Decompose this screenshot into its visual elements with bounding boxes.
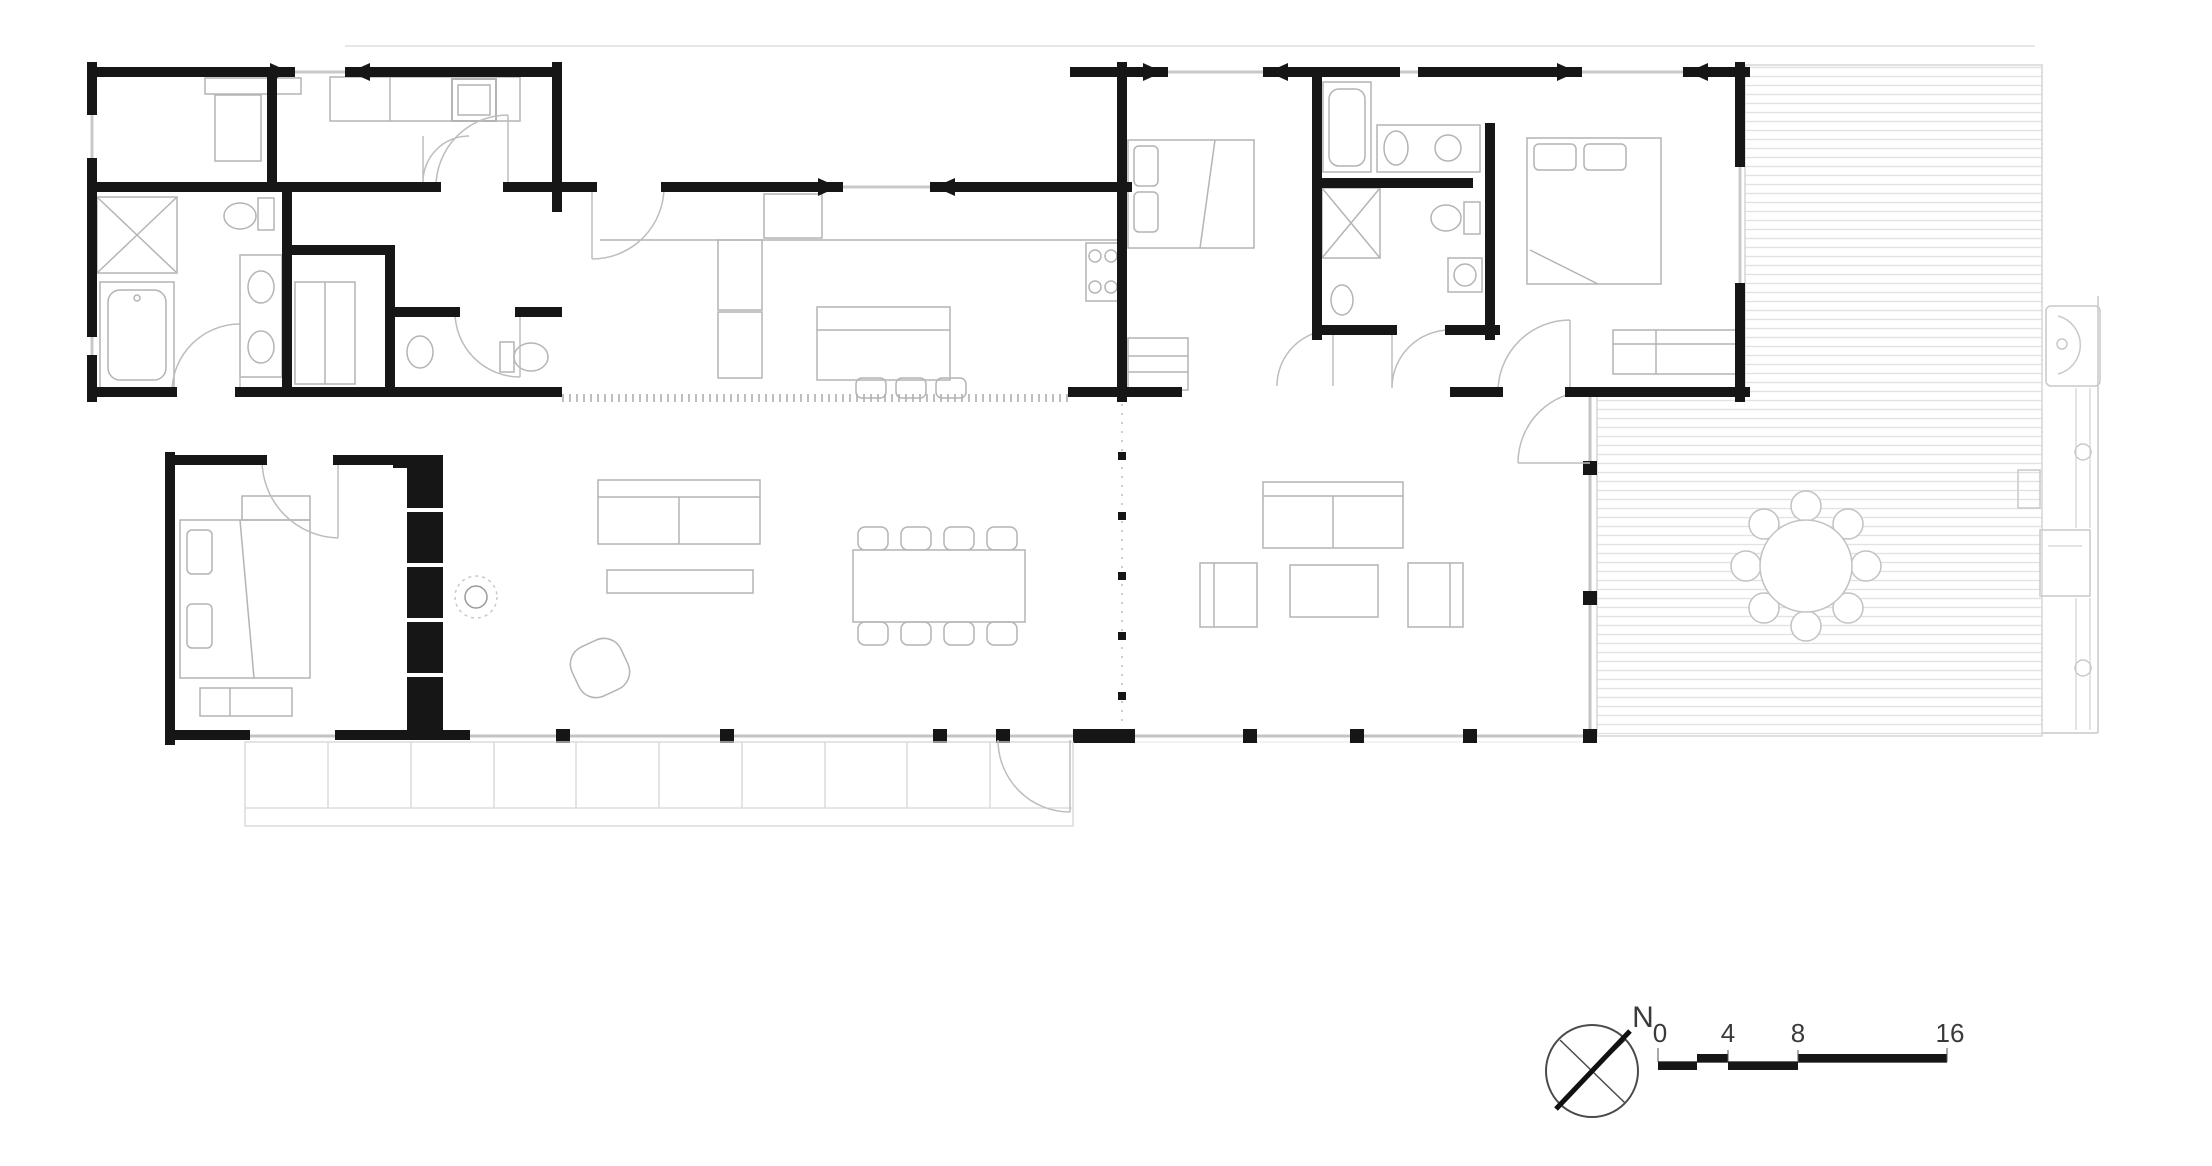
- floor-plan-page: N 0 4 8 16: [0, 0, 2212, 1166]
- family-room-furniture: [1200, 482, 1463, 627]
- laundry-counter: [330, 77, 520, 121]
- walls: [92, 63, 1745, 740]
- tall-cabinet: [718, 240, 762, 310]
- bathroom2-fixtures: [1322, 82, 1482, 315]
- sink: [407, 336, 433, 368]
- scale-label-8: 8: [1791, 1018, 1805, 1048]
- washer: [1448, 258, 1482, 292]
- bedroom2-furniture: [1128, 140, 1254, 390]
- toilet: [258, 198, 274, 230]
- column-grid-line: [1118, 404, 1126, 728]
- armchair: [1408, 563, 1463, 627]
- bedroom1-furniture: [205, 78, 301, 161]
- kitchen-island: [817, 307, 950, 380]
- fridge: [764, 194, 822, 238]
- outdoor-sink: [2046, 306, 2100, 386]
- toilet: [500, 342, 514, 372]
- paver-steps: [245, 742, 1073, 826]
- armchair: [564, 632, 636, 704]
- kitchen: [600, 194, 1122, 398]
- dresser: [1128, 338, 1188, 390]
- scale-label-0: 0: [1653, 1018, 1667, 1048]
- deck: [1597, 65, 2042, 736]
- scale-label-16: 16: [1936, 1018, 1965, 1048]
- double-vanity: [240, 255, 282, 377]
- low-cabinet: [607, 570, 753, 593]
- bathroom1-fixtures: [97, 197, 282, 388]
- living-left-furniture: [455, 480, 760, 704]
- dining-set: [853, 527, 1025, 645]
- bench: [1613, 330, 1737, 374]
- structural-posts: [556, 461, 1597, 743]
- scale-bar: 0 4 8 16: [1653, 1018, 1965, 1070]
- bar-stool: [896, 378, 926, 398]
- bathtub: [100, 282, 174, 388]
- shelving-wall: [393, 455, 443, 740]
- dining-table: [853, 550, 1025, 622]
- north-label: N: [1632, 1001, 1654, 1034]
- armchair: [1200, 563, 1257, 627]
- wood-stove: [465, 586, 487, 608]
- bed: [1527, 138, 1661, 284]
- valve-icon: [2075, 444, 2091, 460]
- powder-room-fixtures: [407, 336, 548, 372]
- dresser: [200, 688, 292, 716]
- grill: [2040, 530, 2090, 596]
- scale-label-4: 4: [1721, 1018, 1735, 1048]
- master-bedroom-furniture: [180, 496, 310, 716]
- toilet: [1464, 202, 1480, 234]
- valve-icon: [2075, 660, 2091, 676]
- floor-plan: N 0 4 8 16: [0, 0, 2212, 1166]
- coffee-table: [1290, 565, 1378, 617]
- bed: [180, 520, 310, 678]
- wc-closet: [295, 282, 355, 384]
- bedroom3-furniture: [1527, 138, 1737, 374]
- outdoor-round-table: [1760, 520, 1852, 612]
- sink: [1331, 285, 1353, 315]
- north-arrow: N: [1546, 1001, 1654, 1117]
